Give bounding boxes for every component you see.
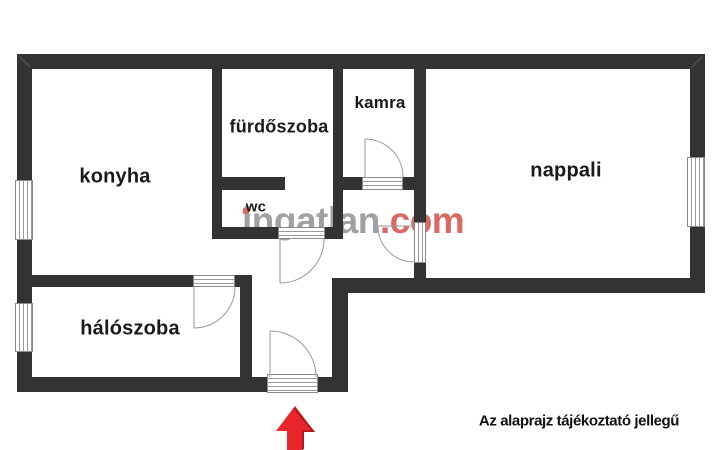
wall-nappali-bottom	[332, 278, 705, 293]
door-swing-arc-haloszoba	[194, 287, 235, 328]
wall-furdoszoba-right	[333, 69, 343, 239]
window-haloszoba	[15, 303, 33, 352]
wall-exterior-right-upper	[690, 54, 705, 157]
door-wc	[278, 227, 325, 239]
wall-nappali-left-upper	[414, 69, 426, 222]
door-swing-arc-entrance	[270, 331, 316, 377]
entrance-arrow-icon	[276, 406, 314, 450]
wall-exterior-bottom-right	[318, 377, 348, 392]
disclaimer-note: Az alaprajz tájékoztató jellegű	[479, 413, 679, 430]
window-nappali	[687, 157, 705, 227]
door-haloszoba	[193, 275, 235, 287]
room-label-haloszoba: hálószoba	[80, 318, 180, 341]
wall-konyha-right	[212, 69, 222, 239]
wall-kamra-bottom-left	[333, 177, 362, 190]
wall-exterior-top	[17, 54, 705, 69]
wall-wc-bottom-right	[325, 227, 343, 239]
wall-exterior-left-middle	[17, 240, 32, 303]
wall-wc-top	[212, 177, 285, 190]
wall-exterior-left-upper	[17, 54, 32, 180]
wall-wc-bottom-left	[212, 227, 278, 239]
door-kamra	[362, 177, 403, 190]
room-label-wc: wc	[246, 199, 266, 216]
room-label-konyha: konyha	[79, 166, 150, 189]
room-label-nappali: nappali	[530, 160, 601, 183]
door-swing-arc-kamra	[365, 139, 403, 177]
wall-hall-right	[332, 278, 348, 392]
wall-haloszoba-right	[240, 275, 252, 377]
door-swing-arc-wc	[280, 239, 324, 283]
floorplan-canvas: ingatlan.com	[0, 0, 720, 450]
door-nappali	[414, 222, 426, 263]
wall-nappali-left-lower	[414, 263, 426, 278]
entrance-arrow-shade	[294, 408, 313, 449]
wall-haloszoba-top-left	[17, 275, 193, 287]
window-konyha	[15, 180, 33, 240]
room-label-kamra: kamra	[354, 93, 405, 113]
room-label-furdoszoba: fürdőszoba	[230, 117, 329, 138]
door-entrance	[267, 374, 318, 393]
wall-exterior-bottom-left	[17, 377, 267, 392]
